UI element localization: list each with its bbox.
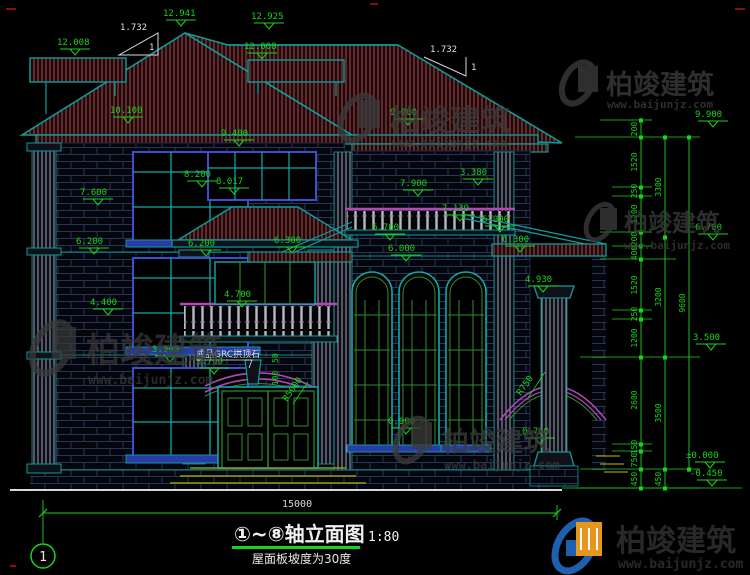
window-3f-center	[208, 152, 316, 200]
watermark-brand: 柏竣建筑	[624, 209, 720, 237]
dim-inner-11: 750	[630, 453, 639, 468]
watermark-url: www.baijunjz.com	[624, 239, 730, 252]
dim-inner-6: 1520	[630, 275, 639, 294]
level-porch-ridge-right: 6.900	[482, 215, 509, 225]
level-porch-eave-right: 6.300	[502, 235, 529, 245]
drawing-scale: 1:80	[368, 530, 399, 545]
dim-outer-0: 9600	[678, 293, 687, 312]
entrance-door	[218, 387, 318, 468]
level-win2-top-left: 6.200	[76, 237, 103, 247]
level-chain-mid: 3.500	[693, 333, 720, 343]
arched-window-3	[441, 272, 491, 452]
dim-inner-12: 450	[630, 472, 639, 487]
level-deco: 3.380	[460, 168, 487, 178]
slope-run-right: 1.732	[430, 45, 457, 55]
arch-trim-dim-bottom: 100	[271, 371, 280, 386]
dim-inner-9: 2600	[630, 390, 639, 409]
slope-rise-right: 1	[471, 63, 476, 73]
watermark-brand: 柏竣建筑	[86, 331, 222, 371]
level-canopy-ridge: 8.017	[216, 177, 243, 187]
total-width-dim: 15000	[282, 499, 312, 510]
dim-mid-0: 3300	[654, 177, 663, 196]
drawing-title: ①~⑧轴立面图	[234, 522, 365, 546]
level-main-eave: 10.100	[110, 106, 143, 116]
level-balcony2-rail: 4.700	[224, 290, 251, 300]
axis-number: 1	[39, 550, 47, 565]
grc-keystone	[245, 360, 261, 384]
logo-url: www.baijunjz.com	[618, 557, 743, 572]
level-canopy-eave: 8.200	[184, 170, 211, 180]
dim-mid-3: 450	[654, 472, 663, 487]
dim-inner-2: 250	[630, 184, 639, 199]
level-win2-top-center: 6.200	[188, 239, 215, 249]
level-ridge-band-right: 12.008	[244, 42, 277, 52]
level-balcony3-top: 7.900	[400, 179, 427, 189]
dim-inner-7: 250	[630, 307, 639, 322]
level-porch-ridge-left: 6.700	[372, 223, 399, 233]
watermark-brand: 柏竣建筑	[606, 69, 714, 101]
level-win3-top: 9.400	[221, 129, 248, 139]
level-win2-sill: 4.400	[90, 298, 117, 308]
level-chain-zero: ±0.000	[686, 451, 719, 461]
cad-elevation-canvas: 1.732 1 1.732 1	[0, 0, 750, 575]
slope-run-left: 1.732	[120, 23, 147, 33]
logo-bottom-right: 柏竣建筑 www.baijunjz.com	[547, 514, 744, 575]
ridge-band-left	[30, 58, 126, 82]
slope-rise-left: 1	[149, 43, 154, 53]
watermark-url: www.baijunjz.com	[88, 373, 213, 388]
level-capital-top: 4.930	[525, 275, 552, 285]
dim-mid-1: 3200	[654, 287, 663, 306]
elevation-drawing: 1.732 1 1.732 1	[0, 0, 750, 575]
watermark-url: www.baijunjz.com	[444, 458, 560, 472]
ridge-band-right	[248, 60, 344, 82]
dim-inner-0: 200	[630, 122, 639, 137]
level-porch-beam: 6.000	[388, 244, 415, 254]
level-porch-eave-left: 6.300	[274, 236, 301, 246]
level-chain-ground: -0.450	[690, 469, 723, 479]
watermark-url: www.baijunjz.com	[392, 136, 508, 150]
watermark-brand: 柏竣建筑	[390, 104, 510, 139]
dim-inner-1: 1520	[630, 152, 639, 171]
level-roof-peak: 12.941	[163, 9, 196, 19]
dim-inner-8: 1200	[630, 328, 639, 347]
level-win3-sill: 7.600	[80, 188, 107, 198]
plinth	[30, 470, 550, 490]
drawing-subtitle: 屋面板坡度为30度	[252, 551, 351, 566]
dim-mid-2: 3500	[654, 403, 663, 422]
logo-brand: 柏竣建筑	[616, 524, 736, 559]
level-chain-top: 9.900	[695, 110, 722, 120]
porch-pier	[592, 256, 606, 470]
watermark-url: www.baijunjz.com	[607, 98, 713, 111]
level-ridge-band-left: 12.008	[57, 38, 90, 48]
level-balcony3-rail: 7.139	[442, 204, 469, 214]
watermark-brand: 柏竣建筑	[442, 426, 550, 458]
arch-trim-dim-top: 50	[271, 353, 280, 363]
dim-inner-10: 150	[630, 440, 639, 455]
level-ridge-rear: 12.925	[251, 12, 284, 22]
